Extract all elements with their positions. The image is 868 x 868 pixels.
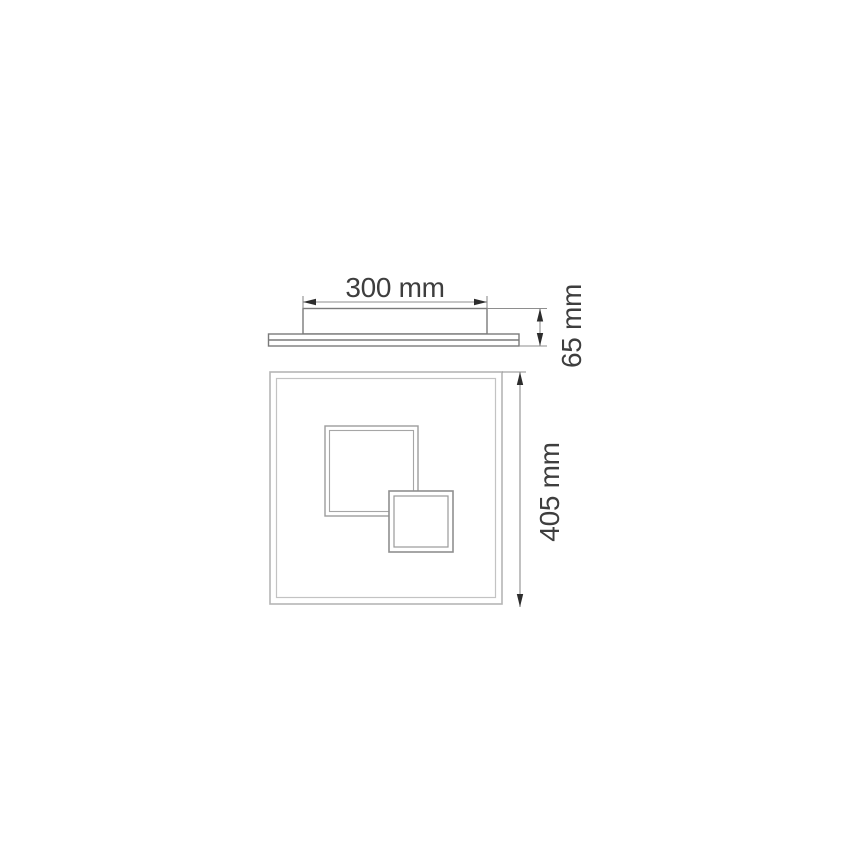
arrowhead-up-icon xyxy=(517,372,523,385)
dimension-drawing-page: 300 mm 65 mm 4 xyxy=(0,0,868,868)
dimension-canopy-width: 300 mm xyxy=(303,272,487,309)
arrowhead-up-icon xyxy=(537,309,543,322)
dimension-label-fixture-height: 65 mm xyxy=(556,284,587,368)
side-view xyxy=(269,309,520,347)
arrowhead-down-icon xyxy=(537,333,543,346)
dimension-panel-size: 405 mm xyxy=(502,372,565,607)
small-light-square xyxy=(389,491,453,552)
dimension-label-panel-size: 405 mm xyxy=(534,442,565,541)
arrowhead-left-icon xyxy=(303,299,316,305)
technical-drawing: 300 mm 65 mm 4 xyxy=(0,0,868,868)
arrowhead-down-icon xyxy=(517,594,523,607)
dimension-fixture-height: 65 mm xyxy=(487,284,587,368)
arrowhead-right-icon xyxy=(474,299,487,305)
canopy-outline xyxy=(303,309,487,335)
front-view xyxy=(270,372,502,604)
dimension-label-canopy-width: 300 mm xyxy=(345,272,444,303)
